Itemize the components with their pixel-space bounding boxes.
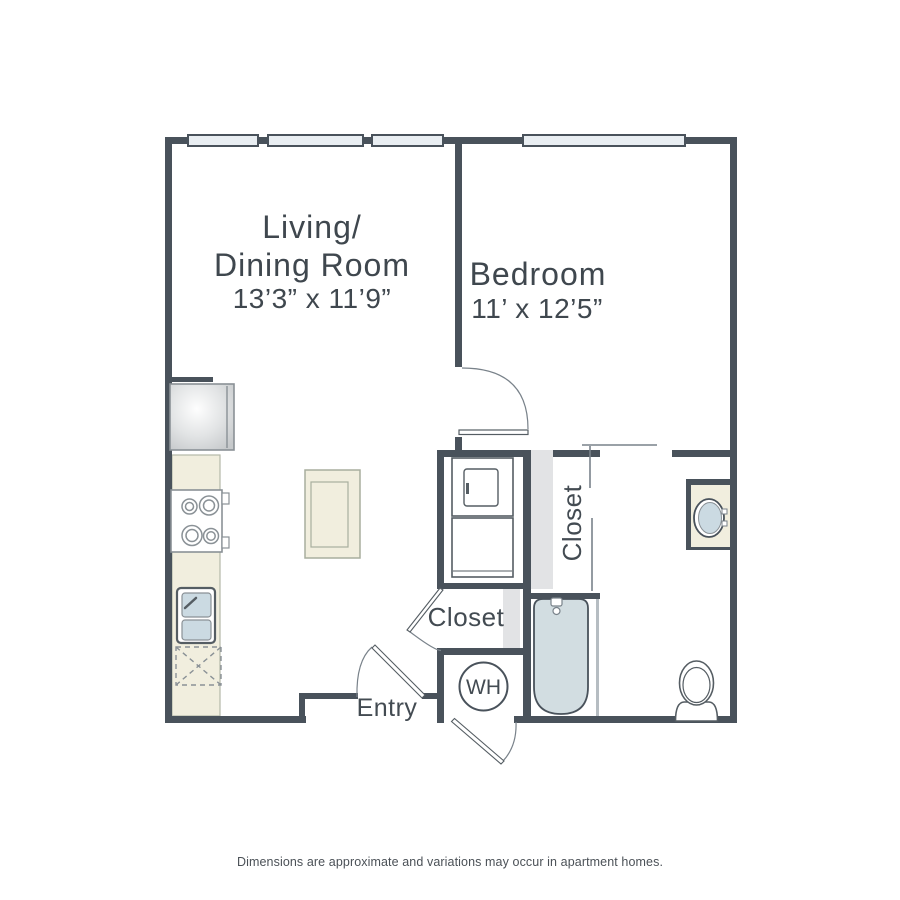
vanity-faucet (722, 521, 727, 526)
water-heater: WH (460, 663, 508, 711)
door-leaf (452, 719, 505, 765)
bedroom-dimensions: 11’ x 12’5” (471, 293, 603, 324)
wall-segment (686, 547, 737, 550)
door-leaf (459, 430, 528, 435)
wall-segment (437, 583, 531, 589)
entry-door-swing (357, 645, 425, 698)
entry-closet-label: Closet (428, 602, 505, 632)
entry-closet-strip (503, 589, 520, 648)
toilet (676, 661, 718, 721)
washer-dryer (452, 458, 513, 577)
bedroom-closet-strip (531, 450, 553, 589)
tub-faucet (551, 598, 562, 606)
door-leaf (372, 645, 425, 698)
wall-segment (437, 450, 444, 589)
bedroom-name: Bedroom (470, 256, 607, 292)
sink-basin (182, 593, 211, 617)
vanity-sink-basin (699, 503, 722, 534)
bath-divider-line (596, 599, 599, 716)
wall-segment (686, 479, 691, 550)
divider-wall (455, 137, 462, 367)
stove-knob (222, 537, 229, 548)
window-bedroom (523, 135, 685, 146)
door-arc (503, 722, 516, 761)
walls (165, 137, 737, 723)
refrigerator (170, 384, 234, 450)
vanity-faucet (722, 509, 727, 514)
window-living-3 (372, 135, 443, 146)
living-dining-name-line2: Dining Room (214, 247, 410, 283)
wall-segment (730, 137, 737, 723)
sink-basin (182, 620, 211, 640)
wall-segment (437, 450, 600, 457)
wall-segment (165, 716, 306, 723)
washer-handle (466, 483, 469, 494)
toilet-seat (683, 668, 710, 703)
bathtub (534, 598, 588, 714)
tub-drain (553, 608, 560, 615)
water-heater-label: WH (466, 676, 501, 699)
wall-segment (437, 648, 444, 723)
door-arc (410, 632, 442, 651)
entry-label: Entry (357, 694, 418, 722)
floor-plan: WH Living/ Dining Room 13’3” x 11’9” Bed… (0, 0, 900, 900)
coffee-table (305, 470, 360, 558)
wall-segment (523, 450, 531, 723)
wall-segment (455, 437, 462, 452)
door-arc (462, 368, 528, 429)
window-living-1 (188, 135, 258, 146)
bathroom-vanity (691, 485, 730, 547)
entry-door-swing-outer (452, 719, 517, 765)
disclaimer-text: Dimensions are approximate and variation… (237, 855, 663, 869)
window-living-2 (268, 135, 363, 146)
stove (171, 490, 229, 552)
floor-plan-svg: WH Living/ Dining Room 13’3” x 11’9” Bed… (0, 0, 900, 900)
door-arc (357, 647, 372, 697)
stove-knob (222, 493, 229, 504)
wall-segment (437, 648, 531, 655)
closet-front-lines (582, 445, 657, 591)
fridge-nook-wall (165, 377, 213, 382)
living-dining-dimensions: 13’3” x 11’9” (233, 283, 392, 314)
wall-segment (672, 450, 737, 457)
washer-door (464, 469, 498, 506)
wall-segment (686, 479, 737, 485)
wall-segment (299, 693, 358, 699)
bedroom-closet-label: Closet (557, 484, 587, 561)
bedroom-door-swing (459, 368, 528, 435)
living-dining-name-line1: Living/ (262, 209, 362, 245)
kitchen-sink (177, 588, 215, 643)
